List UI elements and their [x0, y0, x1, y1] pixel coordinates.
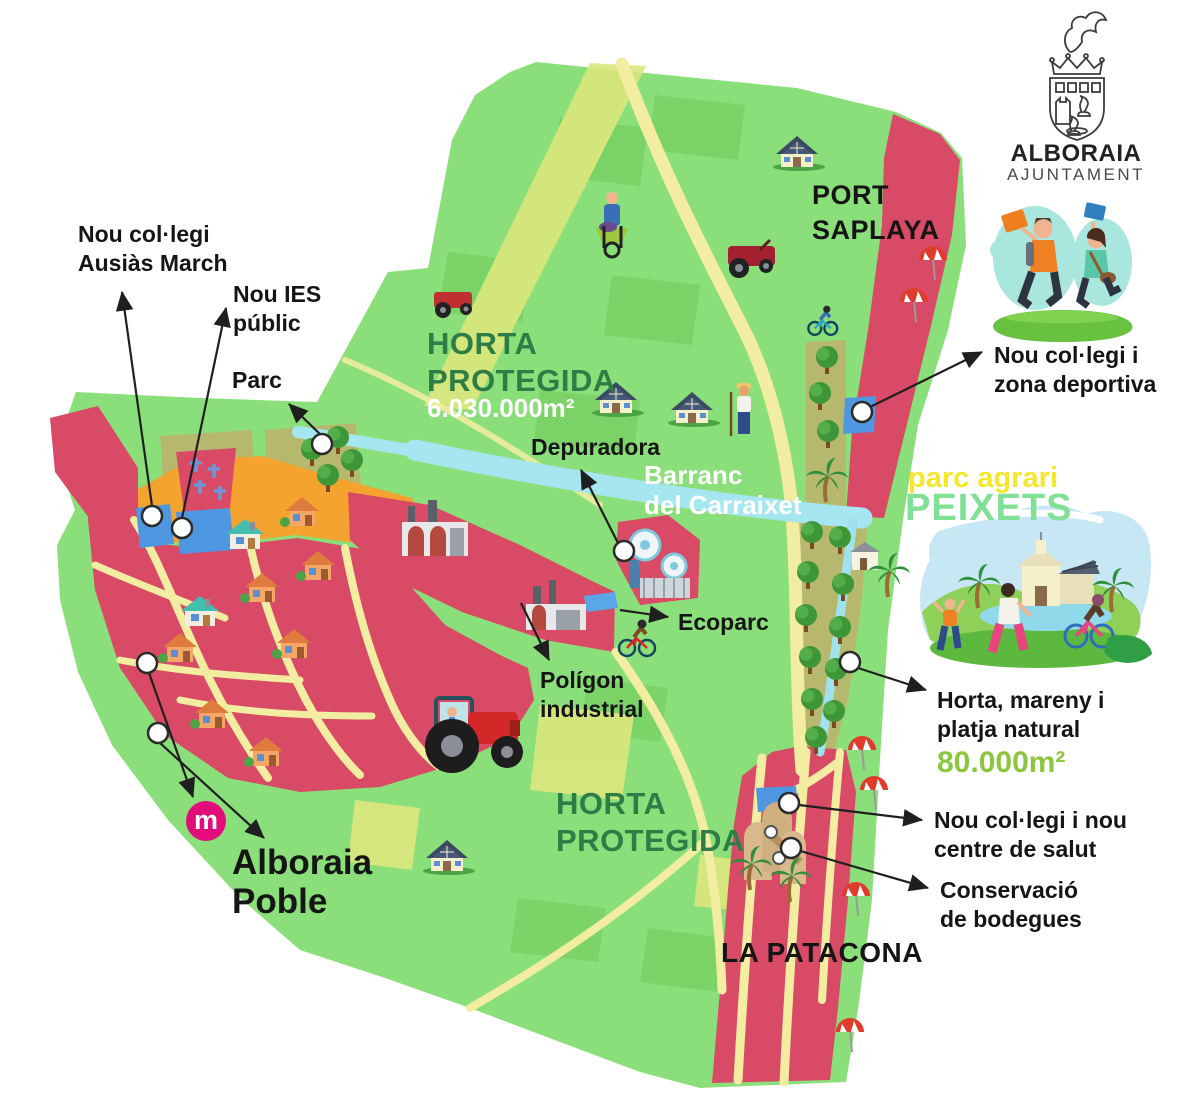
callout-new-school-ausias: Nou col·legi Ausiàs March — [78, 220, 228, 277]
marker-dot — [779, 793, 799, 813]
students-illustration — [990, 202, 1132, 342]
callout-ecoparc: Ecoparc — [678, 608, 769, 637]
marker-dot — [852, 402, 872, 422]
coat-of-arms-icon — [1050, 12, 1106, 140]
marker-dot — [148, 723, 168, 743]
marker-dot — [781, 838, 801, 858]
marker-dot — [840, 652, 860, 672]
marker-dot — [142, 506, 162, 526]
horta-protegida-south-title: HORTA PROTEGIDA — [556, 786, 745, 859]
horta-mareny-area: 80.000m² — [937, 744, 1065, 781]
callout-bodegues: Conservació de bodegues — [940, 876, 1082, 933]
horta-protegida-north-title: HORTA PROTEGIDA — [427, 326, 616, 399]
marker-dot — [172, 518, 192, 538]
horta-protegida-north-area: 6.030.000m² — [427, 392, 574, 424]
la-patacona-label: LA PATACONA — [721, 936, 923, 971]
marker-dot — [614, 541, 634, 561]
callout-poligon-industrial: Polígon industrial — [540, 666, 644, 723]
callout-new-school-health: Nou col·legi i nou centre de salut — [934, 806, 1127, 863]
port-saplaya-label: PORT SAPLAYA — [812, 178, 940, 248]
logo-subtitle: AJUNTAMENT — [1000, 165, 1152, 185]
marker-dot — [312, 434, 332, 454]
callout-depuradora: Depuradora — [531, 433, 660, 462]
alboraia-poble-label: Alboraia Poble — [232, 843, 372, 921]
barranc-label: Barranc del Carraixet — [644, 461, 802, 521]
peixets-park-illustration — [920, 505, 1152, 668]
horta-mareny-label: Horta, mareny i platja natural — [937, 686, 1104, 743]
callout-parc: Parc — [232, 366, 282, 395]
callout-new-school-sports: Nou col·legi i zona deportiva — [994, 341, 1156, 398]
marker-dot — [137, 653, 157, 673]
logo-name: ALBORAIA — [1000, 140, 1152, 168]
metro-station-badge: m — [186, 801, 226, 841]
callout-new-ies: Nou IES públic — [233, 280, 321, 337]
peixets-label: PEIXETS — [905, 489, 1073, 527]
alboraia-map-poster: Nou col·legi Ausiàs March Nou IES públic… — [0, 0, 1200, 1111]
